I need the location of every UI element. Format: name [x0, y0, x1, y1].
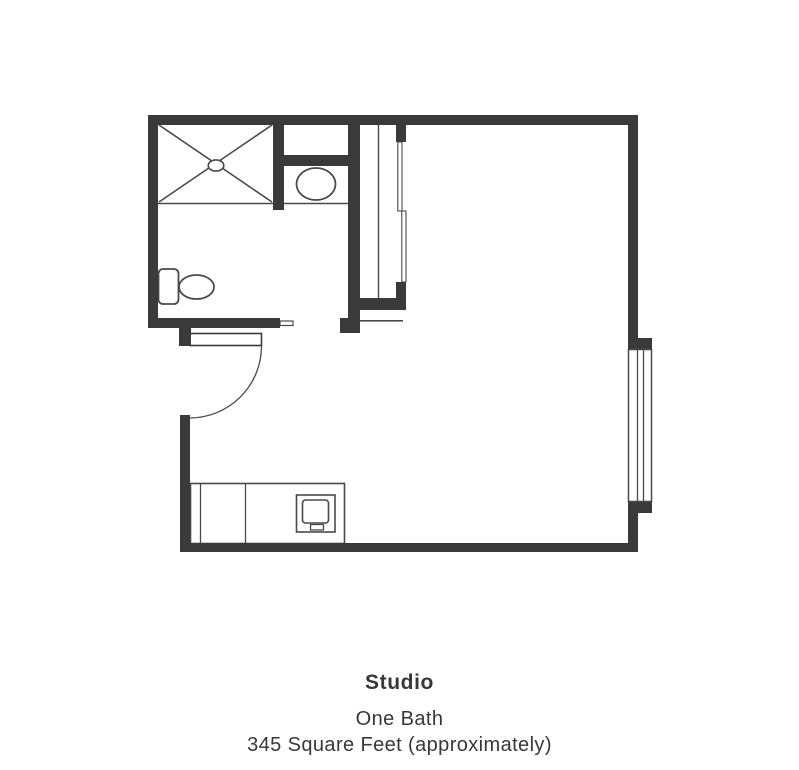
- closet-sliding-doors: [398, 142, 406, 282]
- entry-door-swing-arc: [190, 346, 262, 418]
- window: [629, 350, 652, 502]
- wall-right-lower: [628, 513, 638, 552]
- wall-closet-stub-top: [396, 124, 406, 142]
- caption-block: Studio One Bath 345 Square Feet (approxi…: [0, 671, 799, 758]
- entry-door-leaf: [190, 334, 262, 346]
- floor-plan-drawing: [0, 0, 799, 770]
- wall-closet-stub-bottom: [396, 282, 406, 298]
- toilet-bowl: [179, 275, 214, 299]
- wall-bathroom-bottom: [148, 318, 280, 328]
- wall-closet-bottom: [348, 298, 406, 310]
- entry-door: [190, 334, 262, 419]
- wall-bottom: [180, 543, 638, 552]
- unit-details: One Bath 345 Square Feet (approximately): [0, 706, 799, 758]
- wall-shower-right: [273, 123, 284, 210]
- toilet-tank: [159, 269, 179, 304]
- entry-door-jamb: [179, 328, 191, 346]
- wall-niche: [284, 155, 348, 166]
- unit-title: Studio: [0, 671, 799, 695]
- wall-left-lower: [180, 415, 190, 552]
- window-frame: [629, 350, 652, 502]
- shower-drain: [208, 160, 224, 171]
- shower: [159, 125, 272, 202]
- sliding-panel-a: [398, 142, 402, 211]
- wall-top: [148, 115, 638, 125]
- bath-count-text: One Bath: [0, 706, 799, 732]
- bathroom-sink: [297, 168, 336, 200]
- cooktop-bar: [311, 525, 324, 531]
- square-feet-text: 345 Square Feet (approximately): [0, 732, 799, 758]
- bath-doorway-frame-tick: [280, 321, 293, 326]
- cooktop-screen: [303, 500, 329, 523]
- window-cap-top: [628, 338, 652, 350]
- kitchen-counter: [191, 484, 345, 544]
- sliding-panel-b: [402, 211, 406, 282]
- window-cap-bottom: [628, 501, 652, 513]
- wall-bathroom-right-foot: [340, 318, 349, 333]
- wall-left-bathroom: [148, 115, 158, 328]
- wall-right-upper: [628, 115, 638, 338]
- toilet: [159, 269, 215, 304]
- floor-plan-page: Studio One Bath 345 Square Feet (approxi…: [0, 0, 799, 770]
